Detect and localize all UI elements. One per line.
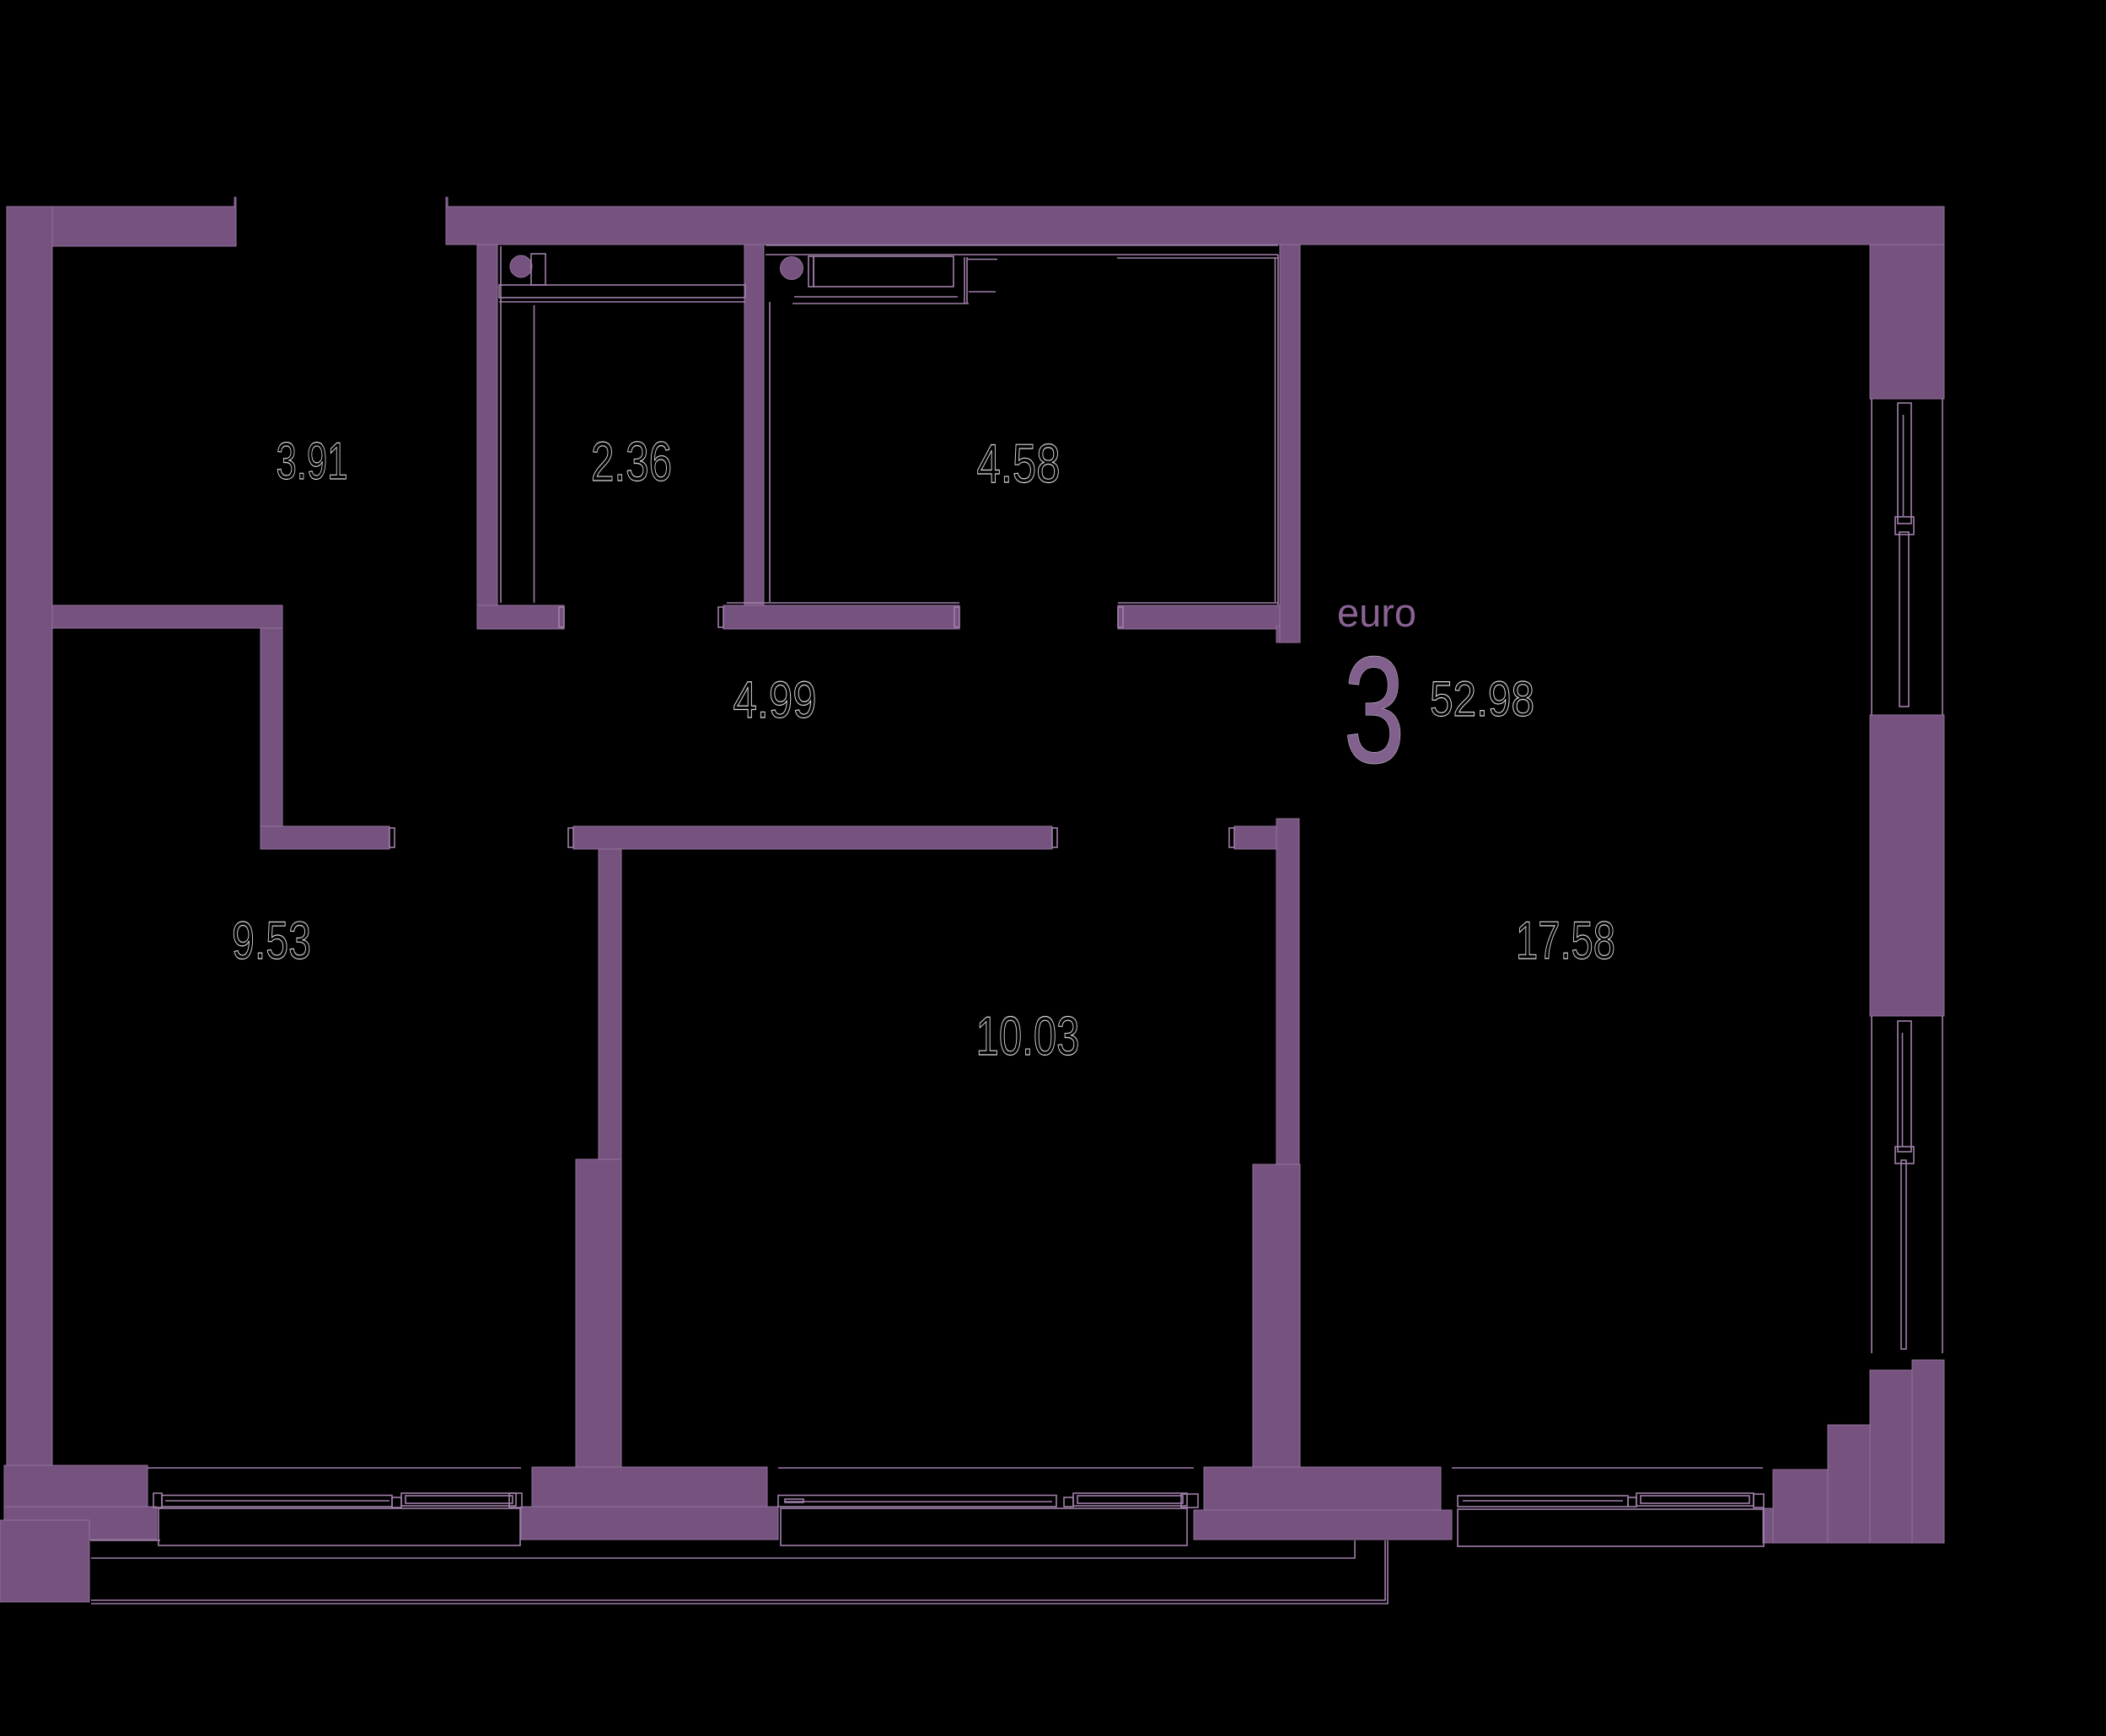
svg-text:17.58: 17.58: [1516, 911, 1615, 970]
svg-text:9.53: 9.53: [232, 911, 311, 970]
svg-text:4.99: 4.99: [733, 671, 817, 728]
svg-text:3: 3: [1343, 626, 1405, 795]
svg-text:10.03: 10.03: [976, 1006, 1080, 1067]
svg-text:4.58: 4.58: [976, 433, 1060, 494]
svg-text:3.91: 3.91: [276, 433, 347, 491]
svg-text:52.98: 52.98: [1430, 672, 1534, 726]
svg-text:2.36: 2.36: [591, 431, 672, 493]
